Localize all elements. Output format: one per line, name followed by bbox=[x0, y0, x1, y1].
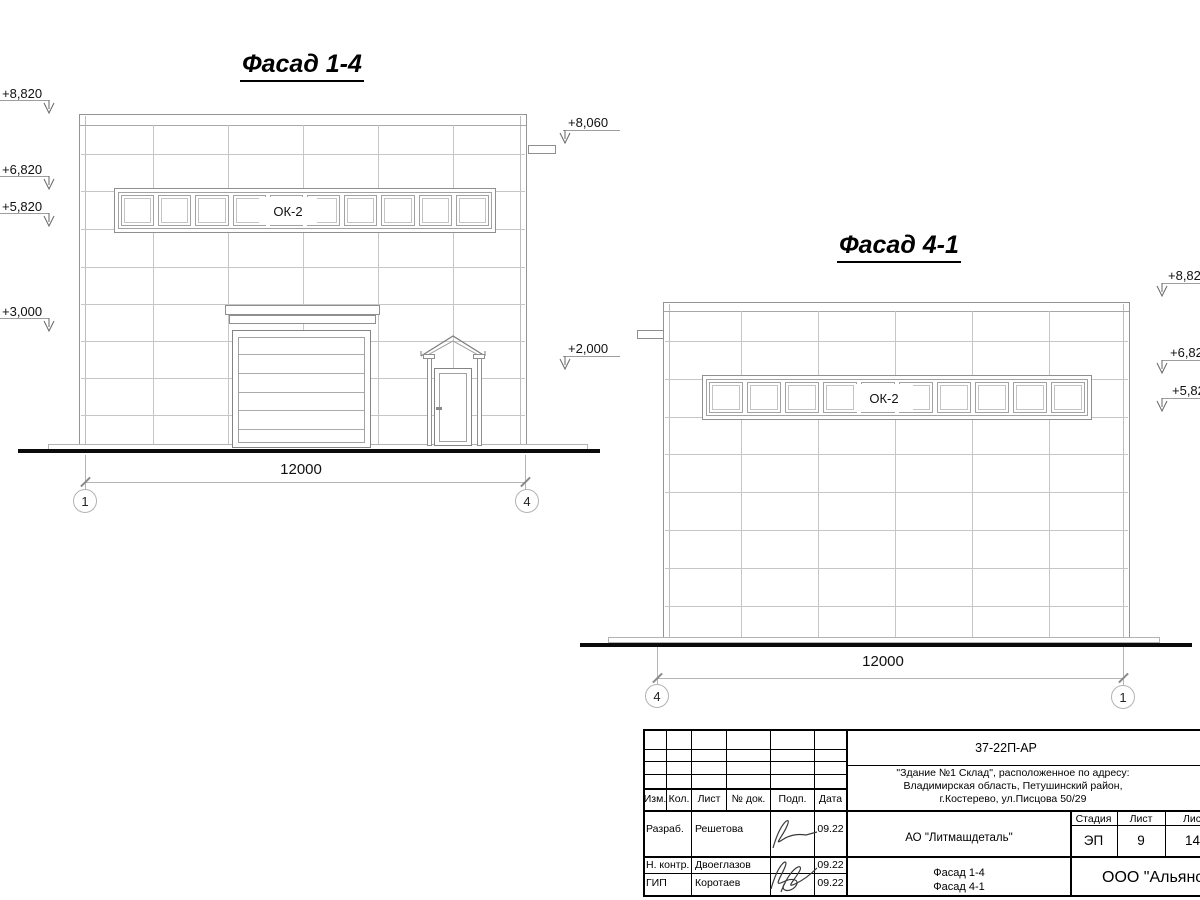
elevation-mark-label: +8,820 bbox=[1168, 268, 1200, 283]
window-pane bbox=[823, 382, 857, 413]
signature-scribble bbox=[765, 812, 823, 855]
signature-scribble bbox=[761, 855, 823, 895]
project-address: "Здание №1 Склад", расположенное по адре… bbox=[846, 767, 1180, 806]
col-kol: Кол. bbox=[666, 791, 692, 807]
elevation-arrow-icon bbox=[559, 130, 571, 146]
panel-joint-vertical bbox=[741, 311, 742, 641]
window-pane bbox=[121, 195, 154, 226]
dimension-line bbox=[657, 678, 1123, 679]
elevation-mark-label: +5,820 bbox=[1172, 383, 1200, 398]
row-role: ГИП bbox=[643, 875, 691, 890]
window-band-ok2: ОК-2 bbox=[702, 375, 1092, 420]
gate-slat-line bbox=[239, 354, 364, 355]
drawing-sheet: Фасад 1-4 ОК-2 bbox=[0, 0, 1200, 900]
panel-joint-horizontal bbox=[665, 492, 1128, 493]
building-edge-line bbox=[1123, 304, 1124, 641]
row-role: Н. контр. bbox=[643, 857, 691, 872]
window-pane bbox=[456, 195, 489, 226]
doc-number: 37-22П-АР bbox=[846, 735, 1166, 761]
elevation-arrow-icon bbox=[43, 176, 55, 192]
dimension-value: 12000 bbox=[840, 653, 926, 670]
elevation-arrow-icon bbox=[43, 318, 55, 334]
elevation-leader-line bbox=[563, 130, 620, 131]
elevation-leader-line bbox=[563, 356, 620, 357]
gate-canopy-upper bbox=[225, 305, 380, 315]
window-pane bbox=[419, 195, 452, 226]
gate-slat-line bbox=[239, 429, 364, 430]
window-pane bbox=[158, 195, 191, 226]
sheet-name-line: Фасад 4-1 bbox=[848, 881, 1070, 895]
window-pane bbox=[975, 382, 1009, 413]
ground-line bbox=[18, 449, 600, 453]
col-izm: Изм. bbox=[643, 791, 667, 807]
gate-slat-line bbox=[239, 373, 364, 374]
elevation-arrow-icon bbox=[1156, 360, 1168, 376]
elevation-mark-label: +6,820 bbox=[2, 162, 42, 177]
gate-canopy-lower bbox=[229, 315, 376, 324]
company-name: ООО "Альянс" bbox=[1102, 869, 1200, 887]
col-data: Дата bbox=[814, 791, 847, 807]
axis-bubble: 4 bbox=[645, 684, 669, 708]
panel-joint-vertical bbox=[153, 125, 154, 450]
building-edge-line bbox=[520, 116, 521, 450]
title-block-line bbox=[643, 761, 847, 762]
title-block-border bbox=[643, 895, 1200, 897]
porch-post bbox=[477, 358, 482, 446]
panel-joint-vertical bbox=[1049, 311, 1050, 641]
dimension-line bbox=[85, 482, 525, 483]
panel-joint-horizontal bbox=[665, 568, 1128, 569]
elevation-leader-line bbox=[0, 100, 49, 101]
col-list: Лист bbox=[691, 791, 727, 807]
sheet-name-line: Фасад 1-4 bbox=[848, 867, 1070, 881]
dimension-value: 12000 bbox=[258, 461, 344, 478]
axis-bubble: 1 bbox=[73, 489, 97, 513]
col-ndok: № док. bbox=[726, 791, 771, 807]
parapet-joint-line bbox=[664, 311, 1129, 312]
elevation-mark-label: +2,000 bbox=[568, 341, 608, 356]
axis-extension-line bbox=[657, 647, 658, 689]
panel-joint-vertical bbox=[895, 311, 896, 641]
gate-slat-line bbox=[239, 410, 364, 411]
col-podp: Подп. bbox=[770, 791, 815, 807]
window-pane bbox=[381, 195, 414, 226]
door-handle bbox=[436, 407, 442, 410]
ground-line bbox=[580, 643, 1192, 647]
sheets-value: 14 bbox=[1165, 826, 1200, 855]
panel-joint-vertical bbox=[972, 311, 973, 641]
sheet-label: Лист bbox=[1117, 812, 1165, 825]
gate-panel-frame bbox=[238, 337, 365, 443]
panel-joint-vertical bbox=[378, 125, 379, 450]
elevation-mark-label: +8,060 bbox=[568, 115, 608, 130]
row-name: Решетова bbox=[692, 821, 770, 837]
elevation-leader-line bbox=[0, 176, 49, 177]
window-pane bbox=[344, 195, 377, 226]
elevation-arrow-icon bbox=[43, 100, 55, 116]
title-block-line bbox=[643, 774, 847, 775]
title-block-line bbox=[846, 765, 1200, 766]
stage-value: ЭП bbox=[1070, 826, 1117, 855]
stage-label: Стадия bbox=[1070, 812, 1117, 825]
facade-4-1-title: Фасад 4-1 bbox=[837, 231, 961, 263]
sectional-gate bbox=[232, 330, 371, 448]
sheet-value: 9 bbox=[1117, 826, 1165, 855]
elevation-mark-label: +6,820 bbox=[1170, 345, 1200, 360]
axis-bubble: 1 bbox=[1111, 685, 1135, 709]
sheet-name: Фасад 1-4 Фасад 4-1 bbox=[848, 867, 1070, 894]
roof-drain-outlet bbox=[528, 145, 556, 154]
panel-joint-vertical bbox=[228, 125, 229, 450]
porch-post bbox=[427, 358, 432, 446]
row-name: Коротаев bbox=[692, 875, 770, 890]
door-leaf bbox=[439, 373, 467, 442]
window-pane bbox=[709, 382, 743, 413]
window-pane bbox=[747, 382, 781, 413]
sheets-label: Листов bbox=[1165, 812, 1200, 825]
window-pane bbox=[195, 195, 228, 226]
address-line: Владимирская область, Петушинский район, bbox=[846, 780, 1180, 793]
window-band-ok2: ОК-2 bbox=[114, 188, 496, 233]
elevation-arrow-icon bbox=[559, 356, 571, 372]
organization-name: АО "Литмашдеталь" bbox=[848, 825, 1070, 851]
elevation-arrow-icon bbox=[1156, 283, 1168, 299]
title-block: Изм. Кол. Лист № док. Подп. Дата Разраб.… bbox=[643, 729, 1200, 897]
roof-drain-outlet bbox=[637, 330, 664, 339]
elevation-arrow-icon bbox=[43, 213, 55, 229]
window-band-label: ОК-2 bbox=[259, 197, 317, 225]
axis-bubble: 4 bbox=[515, 489, 539, 513]
entrance-door bbox=[434, 368, 472, 446]
title-block-line bbox=[643, 749, 847, 750]
elevation-mark-label: +5,820 bbox=[2, 199, 42, 214]
panel-joint-horizontal bbox=[665, 606, 1128, 607]
axis-extension-line bbox=[85, 455, 86, 490]
facade-1-4-title: Фасад 1-4 bbox=[240, 50, 364, 82]
row-role: Разраб. bbox=[643, 821, 691, 837]
panel-joint-horizontal bbox=[665, 341, 1128, 342]
elevation-arrow-icon bbox=[1156, 398, 1168, 414]
row-name: Двоеглазов bbox=[692, 857, 770, 872]
window-pane bbox=[937, 382, 971, 413]
elevation-mark-label: +8,820 bbox=[2, 86, 42, 101]
axis-extension-line bbox=[1123, 647, 1124, 689]
window-pane bbox=[785, 382, 819, 413]
panel-joint-horizontal bbox=[665, 454, 1128, 455]
axis-extension-line bbox=[525, 455, 526, 490]
building-edge-line bbox=[669, 304, 670, 641]
address-line: "Здание №1 Склад", расположенное по адре… bbox=[846, 767, 1180, 780]
window-band-label: ОК-2 bbox=[855, 384, 913, 412]
building-edge-line bbox=[85, 116, 86, 450]
gate-slat-line bbox=[239, 392, 364, 393]
title-block-line bbox=[643, 788, 847, 790]
window-pane bbox=[1013, 382, 1047, 413]
elevation-leader-line bbox=[0, 318, 49, 319]
panel-joint-vertical bbox=[818, 311, 819, 641]
elevation-leader-line bbox=[0, 213, 49, 214]
window-pane bbox=[1051, 382, 1085, 413]
address-line: г.Костерево, ул.Писцова 50/29 bbox=[846, 793, 1180, 806]
panel-joint-horizontal bbox=[665, 530, 1128, 531]
facade-4-1-building-outline bbox=[663, 302, 1130, 643]
elevation-mark-label: +3,000 bbox=[2, 304, 42, 319]
